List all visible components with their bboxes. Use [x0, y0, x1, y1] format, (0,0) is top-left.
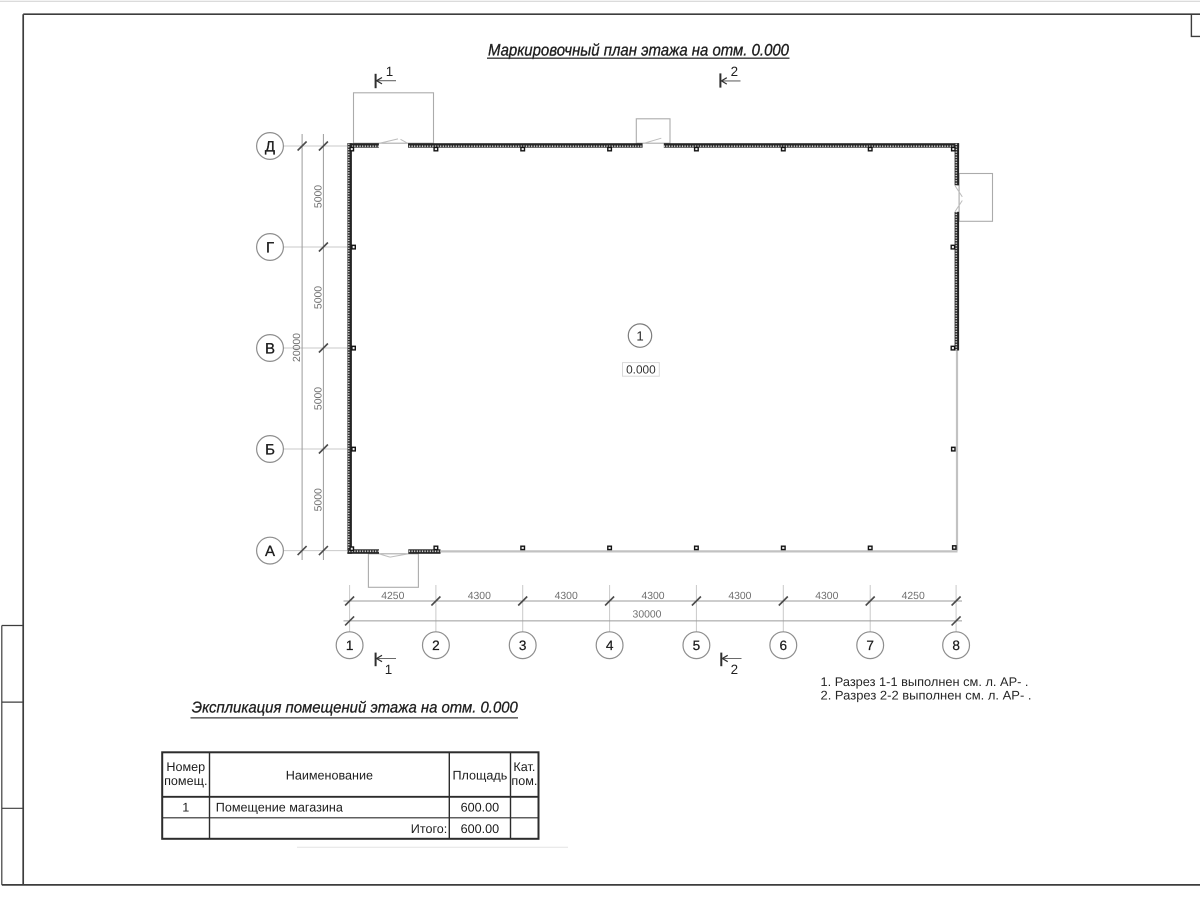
svg-text:30000: 30000 — [633, 609, 662, 620]
svg-text:0.000: 0.000 — [626, 363, 656, 377]
svg-text:Экспликация помещений этажа на: Экспликация помещений этажа на отм. 0.00… — [192, 700, 518, 717]
svg-text:Кат.: Кат. — [513, 760, 535, 774]
svg-text:Итого:: Итого: — [411, 822, 448, 836]
svg-text:1: 1 — [346, 638, 354, 653]
svg-text:4300: 4300 — [641, 591, 664, 602]
svg-text:6: 6 — [780, 638, 788, 653]
svg-text:Маркировочный план этажа на от: Маркировочный план этажа на отм. 0.000 — [488, 40, 790, 59]
svg-text:Номер: Номер — [166, 760, 205, 774]
svg-text:5000: 5000 — [314, 488, 325, 511]
svg-text:Б: Б — [265, 441, 275, 458]
svg-text:1: 1 — [386, 64, 393, 79]
svg-text:3: 3 — [519, 638, 527, 653]
svg-text:1: 1 — [636, 328, 643, 343]
svg-text:Наименование: Наименование — [286, 768, 373, 782]
svg-text:В: В — [265, 340, 275, 357]
svg-text:Г: Г — [266, 239, 274, 256]
svg-text:600.00: 600.00 — [461, 801, 500, 815]
svg-text:5000: 5000 — [314, 387, 325, 410]
svg-text:600.00: 600.00 — [461, 822, 500, 836]
svg-text:2: 2 — [432, 638, 440, 653]
svg-text:2: 2 — [731, 64, 738, 79]
svg-text:Площадь: Площадь — [452, 768, 507, 782]
svg-text:4300: 4300 — [468, 591, 491, 602]
svg-text:5000: 5000 — [314, 185, 325, 208]
svg-text:Помещение магазина: Помещение магазина — [216, 801, 343, 815]
svg-text:4300: 4300 — [815, 591, 838, 602]
svg-text:7: 7 — [866, 638, 874, 653]
svg-text:1: 1 — [182, 801, 189, 815]
svg-text:пом.: пом. — [511, 774, 537, 788]
svg-text:4250: 4250 — [902, 591, 925, 602]
svg-text:4300: 4300 — [555, 591, 578, 602]
svg-text:1: 1 — [385, 662, 392, 677]
svg-text:4300: 4300 — [728, 591, 751, 602]
svg-text:помещ.: помещ. — [164, 774, 207, 788]
svg-text:А: А — [265, 543, 275, 560]
svg-text:4250: 4250 — [381, 591, 404, 602]
svg-text:4: 4 — [606, 638, 614, 653]
svg-text:8: 8 — [952, 638, 960, 653]
svg-text:2. Разрез 2-2 выполнен см. л.: 2. Разрез 2-2 выполнен см. л. АР- . — [821, 688, 1032, 702]
svg-text:Д: Д — [265, 138, 275, 155]
svg-text:5: 5 — [693, 638, 701, 653]
svg-text:5000: 5000 — [314, 286, 325, 309]
svg-text:1. Разрез 1-1 выполнен см. л.: 1. Разрез 1-1 выполнен см. л. АР- . — [821, 675, 1029, 689]
svg-text:2: 2 — [731, 662, 738, 677]
svg-text:20000: 20000 — [292, 333, 303, 362]
